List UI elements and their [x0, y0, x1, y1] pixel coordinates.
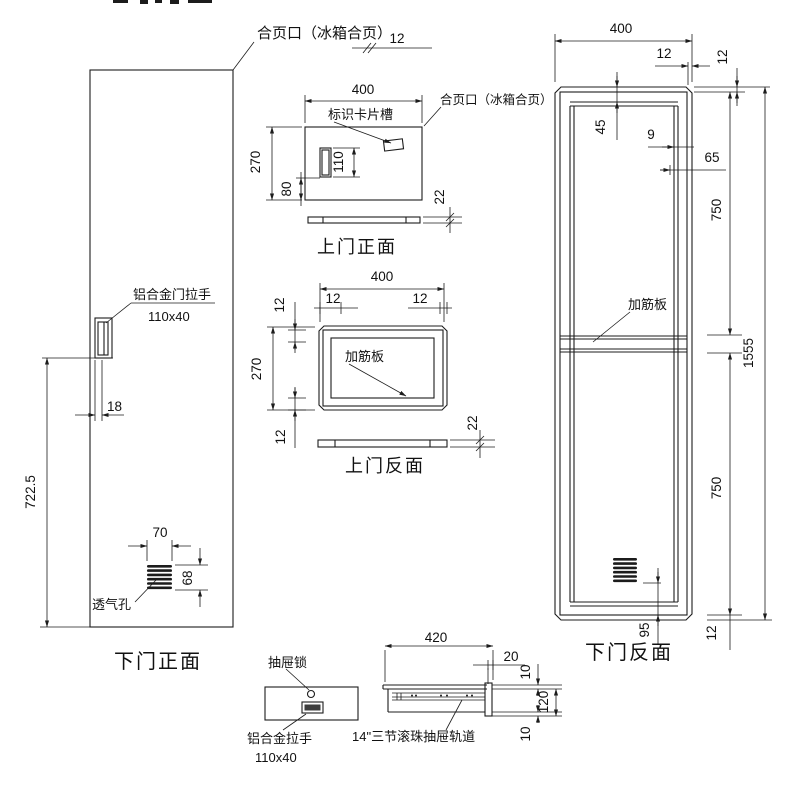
- dim-uf-400: 400: [352, 82, 375, 97]
- cropped-text-fragment: [113, 0, 212, 4]
- view-drawer-side: 420 20 10 120 10 14"三节滚珠抽屉轨道: [352, 630, 562, 744]
- hinge-annotation-top: 合页口（冰箱合页） 12: [233, 25, 432, 70]
- dim-722-5: 722.5: [23, 475, 38, 509]
- dim-ub-12-left: 12: [325, 291, 340, 306]
- dim-dr-10-bottom: 10: [518, 726, 533, 741]
- dim-lb-12-top: 12: [656, 46, 671, 61]
- view-upper-door-back: 400 12 12 12 270 12 加筋板: [249, 269, 495, 476]
- dim-ub-12-bottomleft: 12: [273, 429, 288, 444]
- title-lower-door-front: 下门正面: [114, 650, 202, 673]
- card-slot-label: 标识卡片槽: [328, 107, 393, 122]
- vent-hole-label: 透气孔: [92, 597, 131, 612]
- vent-slots-back: [613, 558, 637, 582]
- dim-lb-750-upper: 750: [709, 199, 724, 222]
- dim-ub-22: 22: [465, 415, 480, 430]
- dim-lb-12-topright: 12: [715, 49, 730, 64]
- drawer-handle-size: 110x40: [255, 750, 297, 765]
- view-drawer-front: 抽屉锁 铝合金拉手 110x40: [247, 655, 358, 765]
- dim-lb-12-bottom: 12: [704, 625, 719, 640]
- door-handle-label: 铝合金门拉手: [133, 287, 211, 302]
- dim-ub-400: 400: [371, 269, 394, 284]
- dim-dr-420: 420: [425, 630, 448, 645]
- rib-label-lower: 加筋板: [628, 297, 667, 312]
- dim-lb-65: 65: [704, 150, 719, 165]
- hinge-note-upper-label: 合页口（冰箱合页）: [440, 92, 553, 107]
- dim-uf-270: 270: [248, 151, 263, 174]
- title-upper-door-front: 上门正面: [317, 237, 397, 257]
- title-upper-door-back: 上门反面: [345, 456, 425, 476]
- view-lower-door-front: 722.5 18 70 68 透气孔 铝合金门拉手 110: [23, 70, 233, 673]
- dim-70: 70: [152, 525, 167, 540]
- dim-lb-95: 95: [637, 622, 652, 637]
- dim-lb-45: 45: [593, 119, 608, 134]
- dim-dr-20: 20: [503, 649, 518, 664]
- dim-lb-400: 400: [610, 21, 633, 36]
- dim-ub-12-topleft: 12: [272, 297, 287, 312]
- dim-dr-10-top: 10: [518, 664, 533, 679]
- dim-uf-80: 80: [279, 181, 294, 196]
- drawer-handle-label: 铝合金拉手: [247, 731, 312, 746]
- dim-68: 68: [180, 570, 195, 585]
- dim-ub-12-right: 12: [412, 291, 427, 306]
- drawer-rail-label: 14"三节滚珠抽屉轨道: [352, 729, 475, 744]
- dim-18: 18: [107, 399, 122, 414]
- view-lower-door-back: 400 12 12 45 9 65 750 750: [555, 21, 772, 664]
- hinge-note-top-label: 合页口（冰箱合页）: [257, 25, 392, 42]
- dim-uf-22: 22: [432, 189, 447, 204]
- cad-drawing: 合页口（冰箱合页） 12 722.5 18: [0, 0, 790, 785]
- view-upper-door-front: 400 270 110 80 标识卡片槽 合页口（冰箱合页）: [248, 82, 553, 257]
- dim-hinge-12: 12: [389, 31, 404, 46]
- drawer-lock-label: 抽屉锁: [268, 655, 307, 670]
- dim-lb-750-lower: 750: [709, 477, 724, 500]
- rib-label-upper: 加筋板: [345, 349, 384, 364]
- cad-sheet: 合页口（冰箱合页） 12 722.5 18: [0, 0, 790, 785]
- drawer-lock-shape: [308, 691, 315, 698]
- dim-lb-1555: 1555: [741, 338, 756, 368]
- dim-ub-270: 270: [249, 358, 264, 381]
- dim-uf-110: 110: [331, 151, 346, 173]
- title-lower-door-back: 下门反面: [585, 641, 673, 664]
- card-slot-shape: [383, 139, 403, 151]
- door-handle-size: 110x40: [148, 309, 190, 324]
- dim-lb-9: 9: [647, 127, 655, 142]
